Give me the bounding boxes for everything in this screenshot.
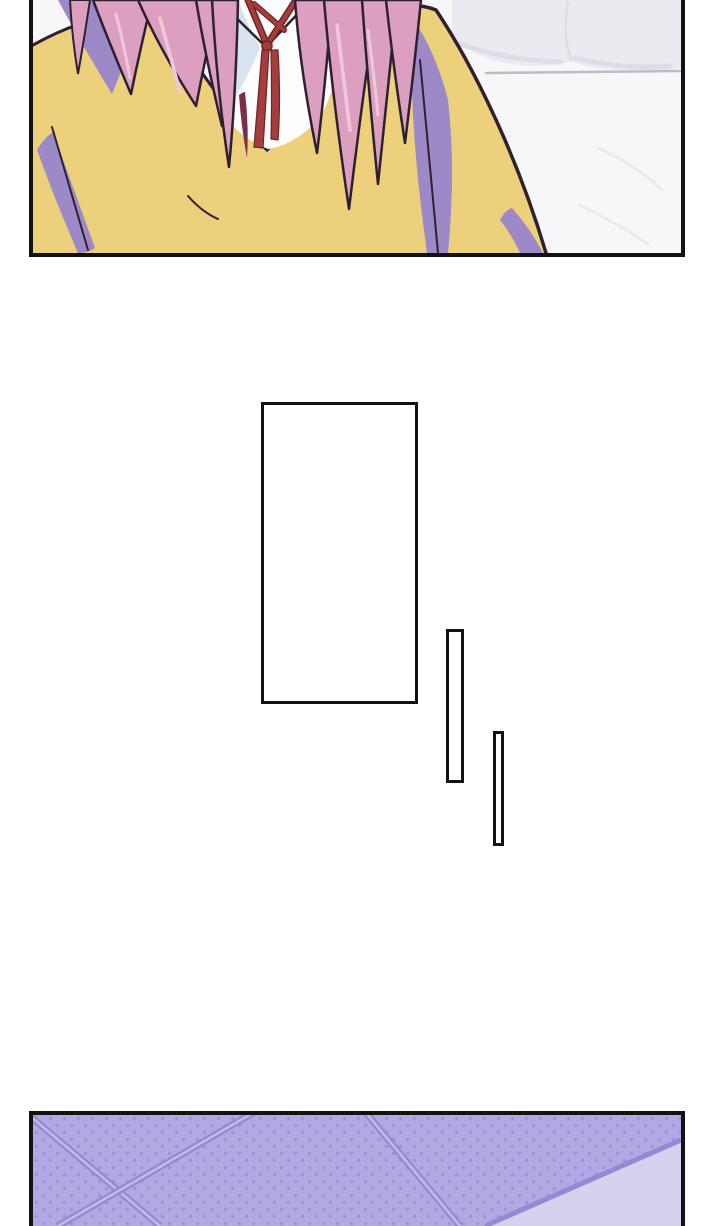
bottom-art-panel	[29, 1111, 685, 1226]
top-art-panel	[29, 0, 685, 257]
empty-speech-box-narrow-1	[446, 629, 464, 783]
empty-speech-box-tall	[261, 402, 418, 704]
empty-speech-box-narrow-2	[493, 731, 504, 846]
bottom-art-panel-drawing	[33, 1115, 681, 1226]
top-art-panel-drawing	[33, 0, 681, 253]
webtoon-page	[0, 0, 728, 1226]
